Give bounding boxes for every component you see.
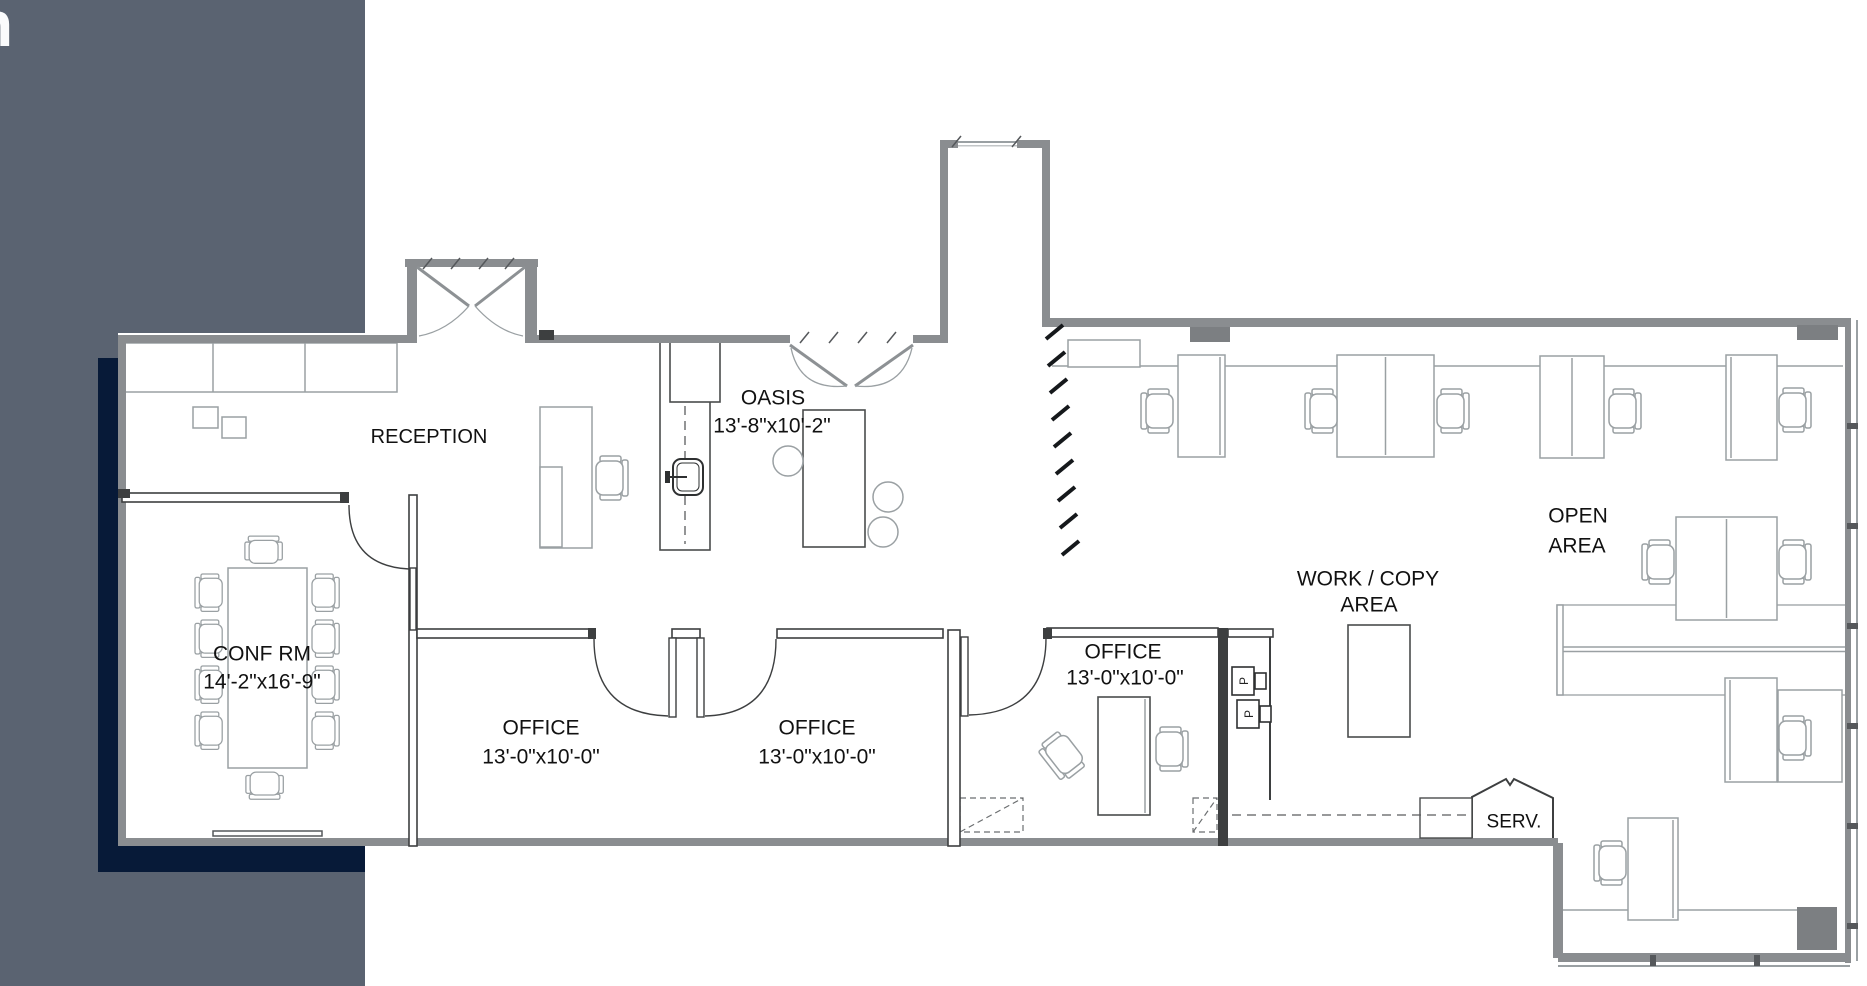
floorplan-screen: n xyxy=(0,0,1867,986)
label-office-2-dims: 13'-0"x10'-0" xyxy=(758,747,876,768)
label-office-3-dims: 13'-0"x10'-0" xyxy=(1066,668,1184,689)
printer-label-2: P xyxy=(1242,710,1256,718)
oasis-furniture xyxy=(660,340,903,550)
label-service: SERV. xyxy=(1487,813,1542,832)
printer-symbols: P P xyxy=(1232,667,1271,728)
label-office-1-dims: 13'-0"x10'-0" xyxy=(482,747,600,768)
office3-furniture xyxy=(960,697,1217,832)
label-open-area: OPEN xyxy=(1548,506,1608,527)
work-copy-table xyxy=(1348,625,1410,737)
label-oasis-dims: 13'-8"x10'-2" xyxy=(713,416,831,437)
printer-label-1: P xyxy=(1237,677,1251,685)
floor-plan-drawing: P P xyxy=(0,0,1867,986)
label-work-copy-2: AREA xyxy=(1340,595,1397,616)
label-oasis: OASIS xyxy=(741,388,805,409)
glazing-ticks xyxy=(423,136,1021,343)
label-open-area-2: AREA xyxy=(1548,536,1605,557)
label-conference: CONF RM xyxy=(213,644,311,665)
label-conference-dims: 14'-2"x16'-9" xyxy=(203,672,321,693)
label-office-1: OFFICE xyxy=(503,718,580,739)
label-reception: RECEPTION xyxy=(371,427,488,447)
label-office-3: OFFICE xyxy=(1085,642,1162,663)
label-office-2: OFFICE xyxy=(779,718,856,739)
label-work-copy: WORK / COPY xyxy=(1297,569,1439,590)
